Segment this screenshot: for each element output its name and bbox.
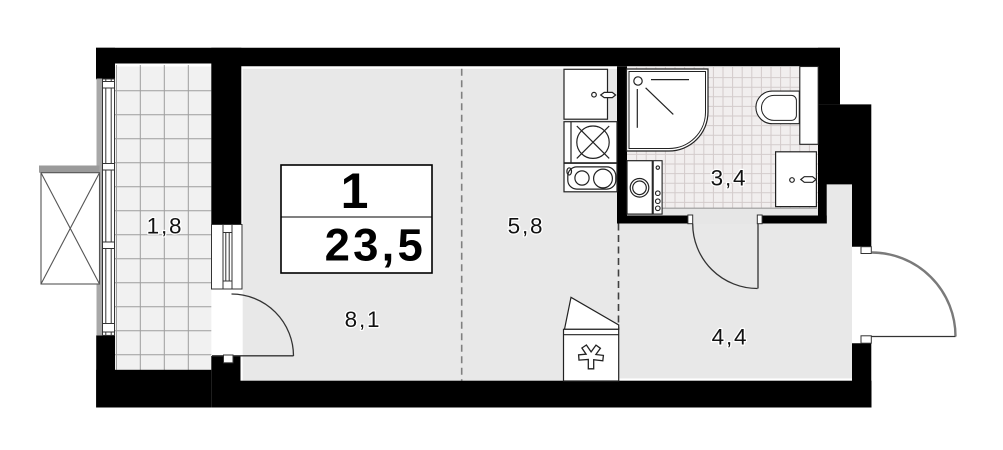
svg-text:3,4: 3,4 — [711, 166, 748, 191]
svg-text:1: 1 — [341, 163, 369, 219]
svg-text:1,8: 1,8 — [147, 214, 184, 239]
svg-text:5,8: 5,8 — [508, 214, 545, 239]
svg-text:23,5: 23,5 — [325, 220, 426, 271]
svg-text:4,4: 4,4 — [712, 325, 749, 350]
svg-text:8,1: 8,1 — [345, 307, 382, 332]
